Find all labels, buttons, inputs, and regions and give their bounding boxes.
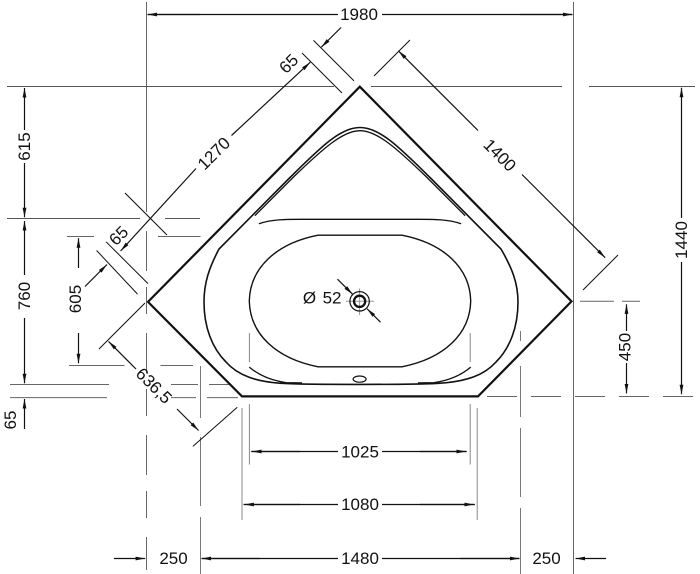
svg-text:615: 615 <box>15 132 34 160</box>
svg-text:52: 52 <box>323 288 342 307</box>
svg-text:1980: 1980 <box>340 5 378 24</box>
svg-text:Ø: Ø <box>303 288 316 307</box>
svg-text:250: 250 <box>159 549 187 568</box>
svg-text:1025: 1025 <box>341 442 379 461</box>
svg-text:1480: 1480 <box>341 549 379 568</box>
svg-text:605: 605 <box>66 285 85 313</box>
svg-text:65: 65 <box>1 411 20 430</box>
svg-text:760: 760 <box>15 282 34 310</box>
svg-text:1440: 1440 <box>672 221 691 259</box>
svg-text:1080: 1080 <box>341 495 379 514</box>
svg-text:250: 250 <box>532 549 560 568</box>
svg-text:450: 450 <box>616 333 635 361</box>
